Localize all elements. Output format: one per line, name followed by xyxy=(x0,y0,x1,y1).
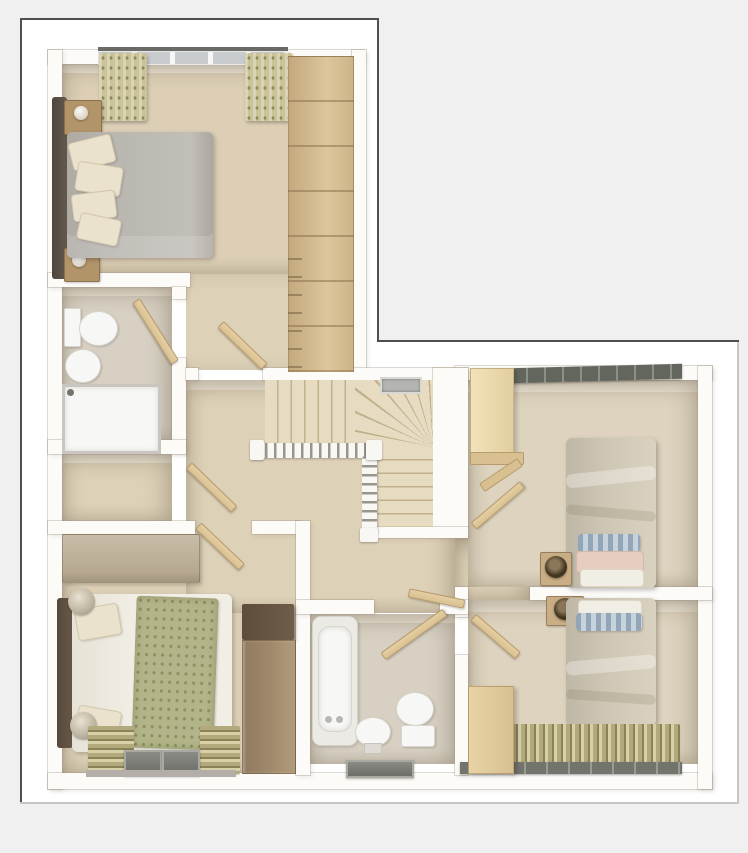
bedroom2-wardrobe-top xyxy=(242,604,294,640)
wall-exterior-leftwing-right xyxy=(352,50,366,380)
wall-bedroom4-left-b xyxy=(455,655,468,775)
wall-stairwell-bottom xyxy=(375,527,468,538)
floorplan-render xyxy=(0,0,748,853)
frame-border-bottom xyxy=(20,802,739,804)
bedroom3-pillow-blue xyxy=(578,534,640,552)
frame-border-top xyxy=(20,18,379,20)
wall-bathroom-top-a xyxy=(296,600,374,614)
bedroom4-pillow-blue xyxy=(576,613,642,631)
staircase-upper-flight xyxy=(265,380,355,447)
wall-bedroom2-top-a xyxy=(48,521,195,534)
bedroom4-wardrobe xyxy=(468,686,514,774)
curtain-left xyxy=(99,53,147,121)
ensuite-toilet-bowl xyxy=(79,311,118,346)
frame-border-step-vertical xyxy=(377,18,379,342)
frame-border-left xyxy=(20,18,22,804)
stair-balustrade-horizontal xyxy=(256,443,380,458)
wall-bedroom2-top-b xyxy=(252,521,300,534)
frame-border-right xyxy=(737,342,739,804)
wardrobe-shelves xyxy=(288,258,302,368)
bathtub-tap xyxy=(336,716,343,723)
bedroom3-pillow-white xyxy=(580,569,644,587)
wall-bedroom2-right xyxy=(296,521,310,775)
bedroom2-lamp-top xyxy=(68,588,95,615)
bedroom3-cream-wardrobe xyxy=(470,368,514,454)
wall-ensuite-right-a xyxy=(172,287,186,299)
shower-head xyxy=(67,389,74,396)
bedroom2-wardrobe xyxy=(242,640,296,774)
bathtub-tap xyxy=(325,716,332,723)
curtain-right xyxy=(245,53,293,121)
wall-ensuite-right-b xyxy=(172,358,186,453)
wall-exterior-right xyxy=(698,366,712,789)
bathroom-window xyxy=(346,760,414,778)
bedroom2-rug-right xyxy=(200,726,240,774)
bedroom2-window-sill xyxy=(86,770,236,777)
table-lamp-top xyxy=(74,106,88,120)
bedroom3-lamp xyxy=(545,556,567,578)
room-airing-cupboard xyxy=(62,453,172,521)
wall-landing-top-stub xyxy=(186,368,198,380)
bathroom-toilet-bowl xyxy=(396,692,434,726)
wall-stairwell-right xyxy=(433,368,468,527)
newel-post-corner xyxy=(366,440,382,460)
bathroom-toilet-cistern xyxy=(401,725,435,747)
staircase-lower-flight xyxy=(377,447,433,527)
bathtub-basin xyxy=(318,626,352,732)
shower-enclosure xyxy=(62,384,161,454)
frame-border-step-horizontal xyxy=(378,340,739,342)
stair-balustrade-vertical xyxy=(362,456,377,534)
bedroom2-dresser xyxy=(62,534,200,583)
ensuite-basin xyxy=(65,349,101,383)
ceiling-vent xyxy=(380,377,422,394)
bathroom-basin-pedestal xyxy=(364,743,382,754)
bedroom4-rug xyxy=(512,724,680,764)
newel-post-bottom xyxy=(360,528,378,542)
newel-post-left xyxy=(250,440,264,460)
